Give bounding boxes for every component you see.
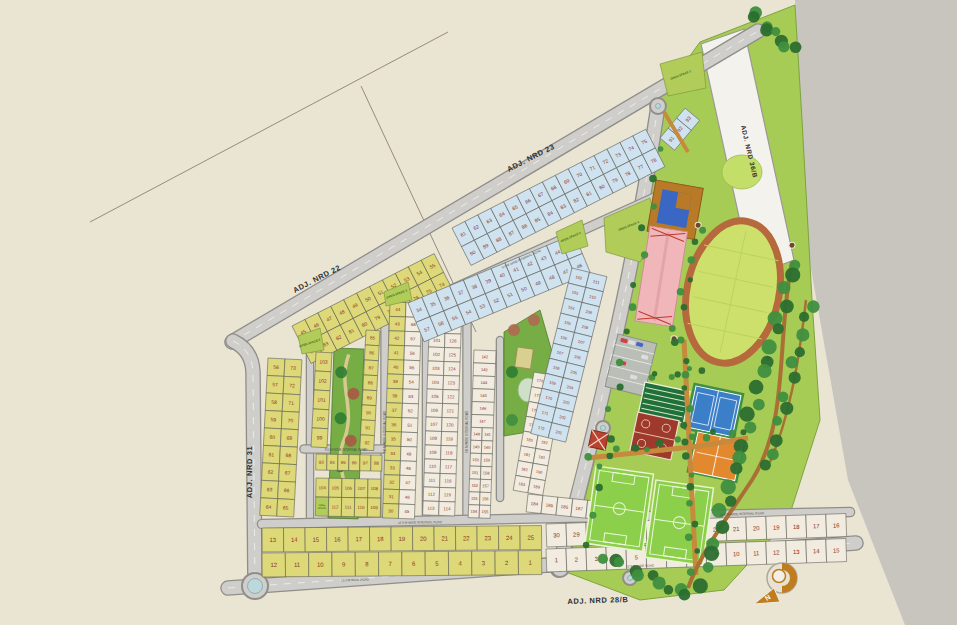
- svg-text:112: 112: [331, 504, 339, 509]
- tree-icon: [616, 359, 623, 366]
- tree-icon: [682, 452, 690, 460]
- svg-text:35: 35: [391, 437, 397, 442]
- svg-text:152: 152: [471, 483, 479, 488]
- tree-icon: [761, 339, 776, 354]
- tree-icon: [632, 569, 644, 581]
- svg-text:10: 10: [733, 551, 741, 557]
- svg-text:155: 155: [481, 509, 489, 514]
- tree-icon: [694, 548, 700, 554]
- tree-icon: [777, 281, 790, 294]
- svg-text:58: 58: [271, 399, 277, 405]
- svg-text:51: 51: [407, 423, 413, 428]
- svg-text:57: 57: [272, 381, 278, 387]
- svg-text:123: 123: [447, 380, 455, 385]
- svg-text:68: 68: [286, 452, 292, 458]
- tree-icon: [675, 436, 681, 442]
- tree-icon: [748, 11, 760, 23]
- svg-text:122: 122: [447, 394, 455, 399]
- tree-icon: [641, 251, 648, 258]
- svg-text:98: 98: [374, 461, 380, 466]
- svg-text:21: 21: [733, 526, 741, 532]
- tree-icon: [656, 439, 664, 447]
- football-field-1: [585, 466, 653, 551]
- svg-text:87: 87: [368, 365, 374, 370]
- svg-text:105: 105: [332, 485, 340, 490]
- tree-icon: [687, 483, 695, 491]
- tree-icon: [753, 399, 765, 411]
- svg-text:34: 34: [390, 451, 396, 456]
- tree-icon: [681, 304, 688, 311]
- tree-icon: [725, 495, 736, 506]
- svg-text:157: 157: [482, 483, 490, 488]
- svg-text:100: 100: [316, 415, 325, 421]
- svg-text:17: 17: [355, 536, 362, 542]
- tree-icon: [786, 356, 799, 369]
- svg-text:149: 149: [473, 444, 481, 449]
- tree-icon: [606, 453, 613, 460]
- svg-text:60: 60: [269, 434, 275, 440]
- tree-icon: [807, 300, 820, 313]
- tree-icon: [710, 429, 716, 435]
- tree-icon: [658, 146, 664, 152]
- tree-icon: [795, 347, 805, 357]
- tree-icon: [678, 589, 690, 601]
- tree-icon: [730, 462, 742, 474]
- tree-icon: [729, 430, 737, 438]
- svg-text:105: 105: [431, 394, 439, 399]
- site-plan-photo: 4546474849505152535455848382818079787776…: [0, 0, 957, 625]
- svg-text:15: 15: [312, 537, 319, 543]
- svg-text:54: 54: [409, 380, 415, 385]
- svg-text:59: 59: [270, 416, 276, 422]
- tree-icon: [629, 303, 637, 311]
- plot-block-yellow-south-row-lower: 121110987654321: [262, 551, 542, 577]
- svg-text:57: 57: [410, 336, 416, 341]
- gazebo: [588, 430, 608, 450]
- svg-text:25: 25: [527, 535, 534, 541]
- svg-text:39: 39: [393, 379, 399, 384]
- svg-text:109: 109: [370, 505, 378, 510]
- tree-icon: [703, 562, 714, 573]
- svg-text:115: 115: [444, 492, 452, 497]
- tree-icon: [749, 380, 764, 395]
- svg-text:53: 53: [408, 394, 414, 399]
- tree-icon: [644, 447, 650, 453]
- svg-text:61: 61: [269, 451, 275, 457]
- svg-text:118: 118: [445, 450, 453, 455]
- svg-text:184: 184: [531, 501, 539, 507]
- tree-icon: [692, 238, 699, 245]
- svg-text:42: 42: [394, 336, 400, 341]
- svg-text:113: 113: [427, 506, 435, 511]
- svg-text:124: 124: [448, 366, 456, 371]
- tree-icon: [693, 578, 708, 593]
- svg-text:104: 104: [319, 485, 327, 490]
- svg-text:12: 12: [270, 562, 277, 568]
- svg-text:90: 90: [366, 410, 372, 415]
- tree-icon: [607, 435, 615, 443]
- svg-text:103: 103: [319, 358, 328, 364]
- svg-text:22: 22: [463, 535, 470, 541]
- roundabout: [650, 98, 666, 114]
- svg-text:161: 161: [484, 432, 492, 437]
- svg-text:142: 142: [481, 354, 489, 359]
- svg-text:23: 23: [484, 535, 491, 541]
- tree-icon: [757, 364, 771, 378]
- svg-text:120: 120: [446, 422, 454, 427]
- svg-text:158: 158: [483, 470, 491, 475]
- tree-icon: [688, 277, 693, 282]
- tree-icon: [688, 256, 696, 264]
- tree-icon: [716, 520, 730, 534]
- tree-icon: [651, 203, 657, 209]
- tree-icon: [649, 175, 657, 183]
- tree-icon: [720, 479, 735, 494]
- tree-icon: [699, 367, 706, 374]
- svg-text:55: 55: [409, 365, 415, 370]
- svg-text:185: 185: [545, 503, 553, 509]
- tree-icon: [739, 406, 754, 421]
- tree-icon: [683, 358, 689, 364]
- svg-text:24: 24: [506, 535, 513, 541]
- svg-text:16: 16: [833, 522, 841, 528]
- svg-text:41: 41: [394, 350, 400, 355]
- tree-icon: [778, 392, 789, 403]
- svg-text:65: 65: [283, 505, 289, 511]
- svg-text:13: 13: [793, 549, 801, 555]
- svg-text:103: 103: [432, 366, 440, 371]
- svg-text:153: 153: [471, 496, 479, 501]
- tree-icon: [597, 464, 603, 470]
- svg-text:116: 116: [444, 478, 452, 483]
- tree-icon: [785, 267, 800, 282]
- svg-text:108: 108: [430, 436, 438, 441]
- svg-text:52: 52: [408, 408, 414, 413]
- tree-icon: [677, 288, 685, 296]
- svg-text:154: 154: [470, 509, 478, 514]
- tree-icon: [760, 459, 771, 470]
- tree-icon: [699, 227, 706, 234]
- tree-icon: [780, 402, 793, 415]
- svg-text:20: 20: [420, 536, 427, 542]
- svg-text:95: 95: [341, 460, 347, 465]
- tree-icon: [703, 434, 710, 441]
- tree-icon: [789, 372, 801, 384]
- tree-icon: [669, 325, 676, 332]
- svg-text:SPACE: SPACE: [318, 507, 326, 509]
- svg-text:63: 63: [267, 486, 273, 492]
- svg-text:12: 12: [773, 549, 781, 555]
- svg-text:125: 125: [448, 352, 456, 357]
- svg-text:159: 159: [483, 457, 491, 462]
- tree-icon: [790, 41, 802, 53]
- svg-text:11: 11: [294, 562, 301, 568]
- svg-text:15: 15: [833, 547, 841, 553]
- svg-text:110: 110: [429, 464, 437, 469]
- svg-text:117: 117: [445, 464, 453, 469]
- svg-text:OPEN: OPEN: [319, 504, 326, 506]
- svg-text:10: 10: [317, 562, 324, 568]
- svg-text:151: 151: [472, 470, 480, 475]
- svg-text:38: 38: [392, 393, 398, 398]
- svg-text:121: 121: [446, 408, 454, 413]
- tree-icon: [691, 521, 698, 528]
- internal-road-label: 9.0 M WIDE INTERNAL ROAD: [383, 410, 387, 453]
- svg-text:85: 85: [370, 335, 376, 340]
- tree-icon: [638, 224, 645, 231]
- svg-text:86: 86: [369, 350, 375, 355]
- svg-text:110: 110: [357, 505, 365, 510]
- svg-text:147: 147: [479, 419, 487, 424]
- tree-icon: [598, 554, 608, 564]
- tree-icon: [686, 500, 693, 507]
- plot-block-yellow-row-below-park: 939495969798: [316, 454, 382, 471]
- tree-icon: [767, 448, 779, 460]
- tree-icon: [770, 434, 783, 447]
- svg-text:46: 46: [405, 495, 411, 500]
- svg-text:31: 31: [389, 494, 395, 499]
- svg-text:111: 111: [345, 505, 352, 510]
- svg-text:160: 160: [484, 445, 492, 450]
- svg-text:187: 187: [575, 506, 583, 512]
- site-plan-map: 4546474849505152535455848382818079787776…: [0, 0, 957, 625]
- tree-icon: [595, 484, 602, 491]
- svg-text:37: 37: [392, 408, 398, 413]
- internal-road-label: 12.0 M WIDE INTERNAL ROAD: [398, 520, 443, 525]
- tree-icon: [675, 371, 681, 377]
- tree-icon: [685, 533, 693, 541]
- svg-text:114: 114: [443, 506, 451, 511]
- svg-text:71: 71: [288, 400, 294, 406]
- tree-icon: [799, 312, 809, 322]
- svg-text:30: 30: [553, 532, 561, 538]
- svg-text:19: 19: [398, 536, 405, 542]
- road-label-adj-nrd-31: ADJ. NRD 31: [245, 446, 254, 498]
- svg-text:96: 96: [352, 460, 358, 465]
- svg-text:19: 19: [773, 524, 781, 530]
- svg-text:13: 13: [269, 537, 276, 543]
- internal-road-label: 9.0 M WIDE INTERNAL ROAD: [465, 410, 469, 453]
- tree-icon: [704, 546, 719, 561]
- tree-icon: [614, 557, 624, 567]
- tree-icon: [773, 323, 784, 334]
- tree-icon: [584, 453, 592, 461]
- svg-text:108: 108: [371, 486, 379, 491]
- svg-text:17: 17: [813, 523, 821, 529]
- svg-text:72: 72: [289, 382, 295, 388]
- tree-icon: [590, 512, 597, 519]
- svg-text:150: 150: [472, 457, 480, 462]
- tree-icon: [613, 445, 620, 452]
- svg-text:143: 143: [481, 367, 489, 372]
- svg-text:58: 58: [411, 322, 417, 327]
- tree-icon: [682, 371, 690, 379]
- tree-icon: [796, 328, 809, 341]
- tree-icon: [682, 385, 688, 391]
- svg-text:14: 14: [813, 548, 821, 554]
- svg-text:148: 148: [473, 431, 481, 436]
- tree-icon: [689, 434, 696, 441]
- svg-text:56: 56: [273, 364, 279, 370]
- svg-text:92: 92: [364, 440, 370, 445]
- svg-text:18: 18: [793, 524, 801, 530]
- svg-text:43: 43: [395, 321, 401, 326]
- svg-text:30: 30: [388, 508, 394, 513]
- svg-text:102: 102: [318, 377, 327, 383]
- svg-text:106: 106: [430, 408, 438, 413]
- tree-icon: [624, 329, 630, 335]
- svg-text:88: 88: [368, 380, 374, 385]
- tree-icon: [772, 416, 782, 426]
- svg-text:40: 40: [393, 365, 399, 370]
- tree-icon: [630, 282, 636, 288]
- svg-text:107: 107: [430, 422, 438, 427]
- svg-text:45: 45: [404, 509, 410, 514]
- svg-text:44: 44: [395, 307, 401, 312]
- svg-text:56: 56: [410, 351, 416, 356]
- svg-text:119: 119: [446, 436, 454, 441]
- tree-icon: [671, 339, 678, 346]
- tree-icon: [632, 444, 639, 451]
- tree-icon: [583, 542, 590, 549]
- tree-icon: [689, 472, 694, 477]
- tree-icon: [687, 568, 695, 576]
- tree-icon: [652, 371, 657, 376]
- internal-road-label: 9.0 M WIDE INTERNAL ROAD: [325, 448, 368, 452]
- svg-text:93: 93: [319, 460, 325, 465]
- tree-icon: [664, 585, 674, 595]
- tree-icon: [740, 429, 746, 435]
- internal-road-label: 12.0 M WIDE ROAD: [341, 578, 370, 583]
- tree-icon: [780, 300, 794, 314]
- svg-text:21: 21: [441, 536, 448, 542]
- plot-block-yellow-small-block: 104105106107108OPENSPACE112111110109: [315, 478, 381, 517]
- tree-icon: [760, 23, 773, 36]
- svg-text:112: 112: [428, 492, 436, 497]
- svg-text:20: 20: [753, 525, 761, 531]
- svg-text:156: 156: [482, 496, 490, 501]
- svg-text:73: 73: [290, 365, 296, 371]
- svg-text:18: 18: [377, 536, 384, 542]
- tree-icon: [681, 438, 688, 445]
- svg-text:14: 14: [291, 537, 298, 543]
- svg-text:11: 11: [753, 550, 760, 556]
- svg-text:106: 106: [345, 486, 353, 491]
- svg-text:29: 29: [573, 531, 581, 537]
- tree-icon: [653, 576, 666, 589]
- svg-text:102: 102: [432, 352, 440, 357]
- tree-icon: [617, 383, 624, 390]
- tree-icon: [687, 366, 692, 371]
- svg-text:144: 144: [480, 380, 488, 385]
- svg-text:70: 70: [287, 417, 293, 423]
- tree-icon: [680, 422, 687, 429]
- svg-text:101: 101: [433, 338, 441, 343]
- tree-icon: [605, 406, 611, 412]
- svg-text:94: 94: [330, 460, 336, 465]
- tree-icon: [771, 27, 780, 36]
- svg-text:111: 111: [428, 478, 436, 483]
- tree-icon: [669, 374, 675, 380]
- svg-text:49: 49: [406, 451, 412, 456]
- svg-text:91: 91: [365, 425, 371, 430]
- tree-icon: [686, 405, 693, 412]
- svg-text:109: 109: [429, 450, 437, 455]
- svg-text:97: 97: [363, 460, 369, 465]
- svg-text:69: 69: [286, 435, 292, 441]
- svg-text:36: 36: [391, 422, 397, 427]
- plot-block-yellow-south-row-upper: 13141516171819202122232425: [262, 526, 542, 552]
- svg-text:67: 67: [285, 470, 291, 476]
- svg-text:104: 104: [431, 380, 439, 385]
- svg-text:48: 48: [406, 466, 412, 471]
- svg-text:64: 64: [266, 504, 272, 510]
- svg-text:16: 16: [334, 536, 341, 542]
- svg-text:33: 33: [390, 465, 396, 470]
- svg-text:126: 126: [449, 338, 457, 343]
- svg-text:107: 107: [358, 486, 366, 491]
- svg-text:66: 66: [284, 487, 290, 493]
- tree-icon: [778, 41, 789, 52]
- svg-text:89: 89: [367, 395, 373, 400]
- svg-text:47: 47: [405, 480, 411, 485]
- svg-text:101: 101: [317, 396, 326, 402]
- svg-text:62: 62: [268, 469, 274, 475]
- svg-text:145: 145: [480, 393, 488, 398]
- svg-text:50: 50: [407, 437, 413, 442]
- svg-text:146: 146: [480, 406, 488, 411]
- svg-text:99: 99: [317, 434, 323, 440]
- svg-text:32: 32: [389, 480, 395, 485]
- svg-text:186: 186: [560, 504, 568, 510]
